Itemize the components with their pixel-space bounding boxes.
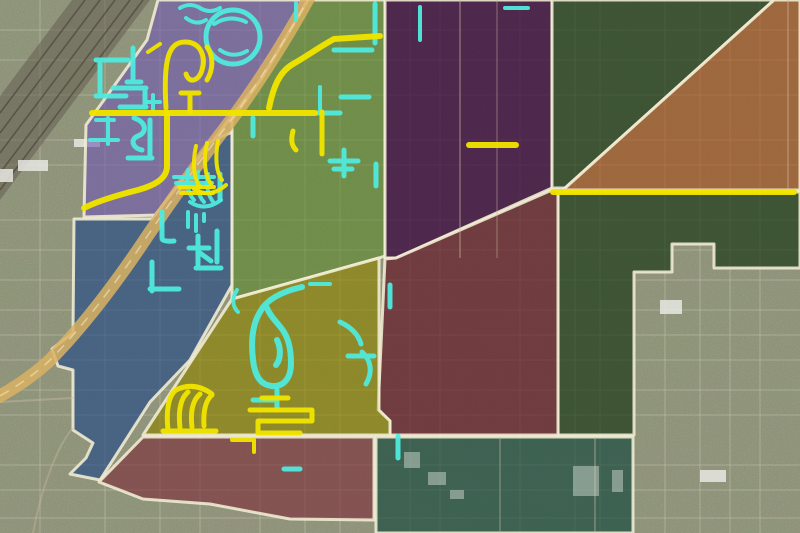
teal-building-1 <box>428 472 446 485</box>
teal-building-0 <box>404 452 420 468</box>
building-1 <box>18 160 48 171</box>
teal-building-4 <box>450 490 464 499</box>
map-canvas[interactable] <box>0 0 800 533</box>
teal-building-3 <box>612 470 623 492</box>
map-viewport[interactable] <box>0 0 800 533</box>
teal-building-2 <box>573 466 599 496</box>
building-3 <box>660 300 682 314</box>
building-4 <box>700 470 726 482</box>
building-2 <box>0 169 13 182</box>
